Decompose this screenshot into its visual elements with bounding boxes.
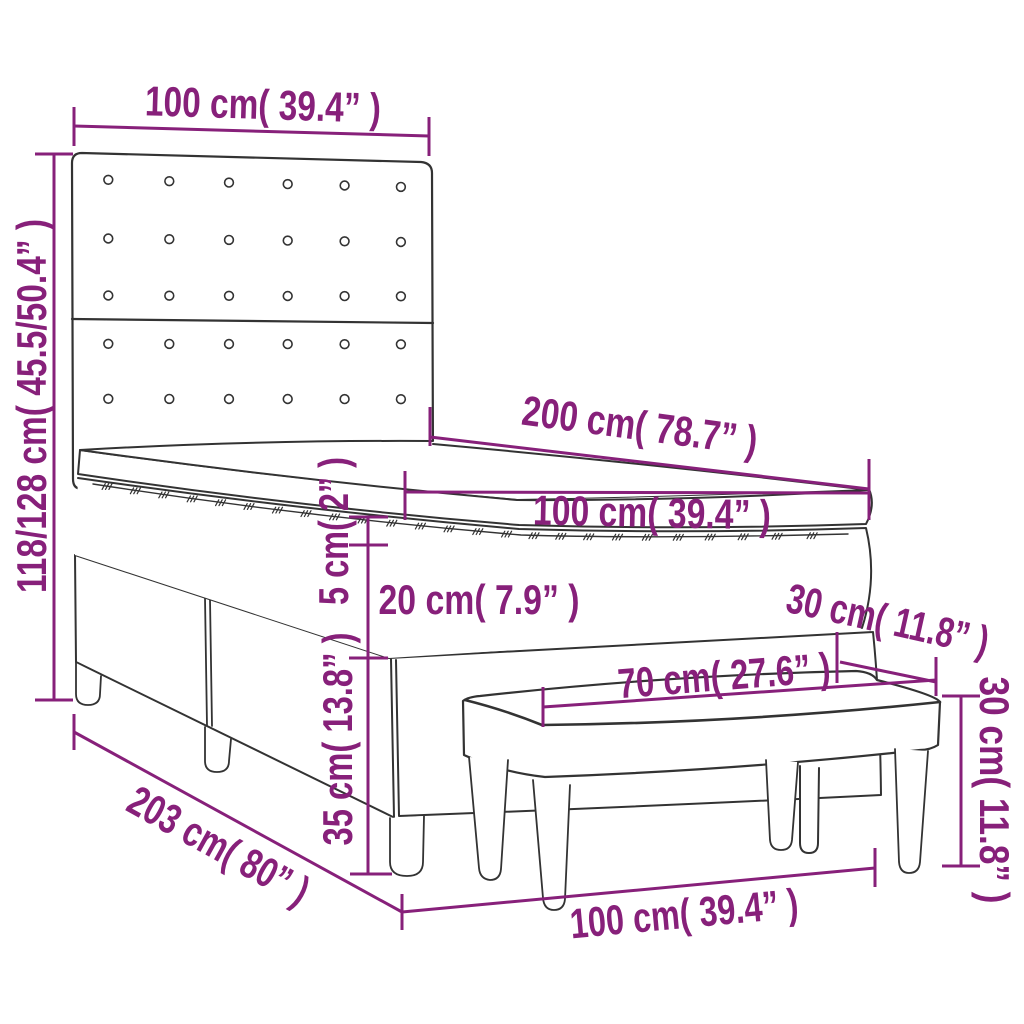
svg-text:100 cm( 39.4” ): 100 cm( 39.4” ) (533, 487, 772, 539)
svg-text:100 cm( 39.4” ): 100 cm( 39.4” ) (144, 77, 381, 131)
svg-text:35 cm( 13.8” ): 35 cm( 13.8” ) (314, 633, 361, 846)
svg-text:20 cm( 7.9” ): 20 cm( 7.9” ) (379, 576, 580, 623)
svg-text:118/128 cm( 45.5/50.4” ): 118/128 cm( 45.5/50.4” ) (8, 219, 55, 593)
svg-text:100 cm( 39.4” ): 100 cm( 39.4” ) (568, 880, 800, 948)
svg-text:203 cm( 80” ): 203 cm( 80” ) (120, 776, 318, 914)
svg-text:30 cm( 11.8” ): 30 cm( 11.8” ) (971, 677, 1018, 904)
svg-text:5 cm( 2” ): 5 cm( 2” ) (310, 457, 357, 605)
